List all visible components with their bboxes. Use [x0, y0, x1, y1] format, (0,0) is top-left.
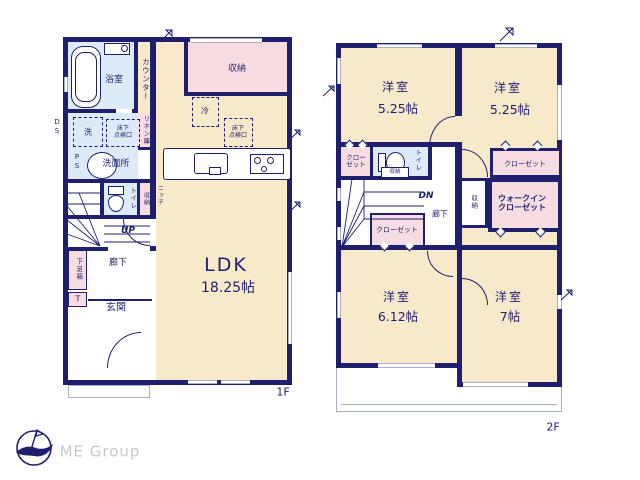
dn-label: DN	[418, 191, 433, 201]
closet-top-label: クローゼット	[504, 160, 546, 168]
counter-label: カウンター	[141, 58, 150, 101]
balcony-rail	[341, 404, 557, 405]
hatch-line2: 点検口	[114, 132, 132, 139]
burner	[261, 166, 267, 172]
wall	[455, 43, 462, 116]
vent-mark	[560, 288, 574, 302]
window	[337, 292, 342, 318]
shoebox-label: 下足箱	[74, 258, 81, 281]
bath-vanity-bowl	[121, 45, 128, 52]
floor1-label: 1F	[276, 387, 289, 400]
wall	[63, 247, 108, 251]
ldk-label: LDK	[204, 255, 248, 277]
toilet-tank	[108, 186, 124, 195]
ps-label: PS	[73, 153, 81, 171]
window	[288, 272, 293, 344]
ds-label: DS	[53, 118, 61, 136]
vent-mark	[497, 24, 515, 42]
wic-line2: クローゼット	[498, 203, 546, 212]
room-tl-size: 5.25帖	[378, 102, 418, 116]
wall	[100, 183, 104, 215]
wall	[134, 37, 138, 113]
floor2-label: 2F	[546, 422, 559, 435]
room-tr-size: 5.25帖	[490, 103, 530, 117]
porch	[68, 385, 150, 398]
kitchen-faucet	[209, 167, 221, 175]
bird-logo-icon	[12, 426, 56, 470]
bath-door-gap	[116, 109, 132, 113]
vent-mark	[158, 27, 174, 43]
burner	[254, 157, 261, 164]
door-gap	[150, 219, 156, 246]
wic-label: ウォークイン クローゼット	[498, 194, 546, 212]
stairs-1f-winder	[67, 183, 100, 246]
niche-label: ニッチ	[156, 185, 163, 206]
ldk-storage-label: 収納	[228, 64, 246, 74]
linen-label: リネン庫	[141, 115, 148, 145]
bathtub-inner	[75, 52, 97, 102]
vent-mark	[288, 128, 302, 142]
wall	[184, 92, 287, 96]
window	[190, 38, 262, 43]
window	[557, 85, 562, 140]
vent-mark	[288, 200, 302, 214]
storage-mid-label: 収納	[469, 195, 476, 210]
floorplan-canvas: 浴室 カウンター 洗 床下 点検口 リネン庫 洗面所 PS DS トイレ 収納 …	[0, 0, 640, 480]
room-br-label: 洋室	[495, 291, 523, 305]
closet-mid-label: クローゼット	[376, 226, 418, 234]
up-label: UP	[121, 226, 135, 236]
wall	[428, 147, 432, 180]
fridge-label: 冷	[201, 106, 209, 115]
hallway1-label: 廊下	[109, 258, 127, 268]
hallway2-label: 廊下	[432, 209, 448, 218]
wic-line1: ウォークイン	[498, 194, 546, 203]
wall	[184, 37, 188, 92]
window	[378, 363, 435, 368]
closet-tl-label: クロー ゼット	[346, 155, 366, 170]
window	[337, 188, 342, 201]
vent-mark	[322, 84, 336, 98]
wall	[137, 183, 140, 215]
hatch-line2: 点検口	[229, 132, 247, 139]
wall	[455, 147, 462, 250]
logo-text: ME Group	[60, 443, 141, 460]
closet-line2: ゼット	[346, 161, 366, 169]
window	[463, 382, 528, 387]
room-bl-label: 洋室	[383, 291, 411, 305]
room-tl-label: 洋室	[382, 81, 410, 95]
washroom-label: 洗面所	[102, 159, 129, 169]
window	[188, 380, 217, 385]
entrance-label: 玄関	[106, 302, 126, 314]
room-tr-label: 洋室	[494, 82, 522, 96]
window	[377, 44, 422, 49]
bathroom-label: 浴室	[105, 75, 123, 85]
toilet1-label: トイレ	[128, 187, 135, 210]
ldk-size-label: 18.25帖	[201, 280, 255, 296]
floor-hatch2-label: 床下 点検口	[229, 126, 247, 140]
t-label: T	[76, 294, 81, 303]
window	[337, 227, 342, 240]
entrance-step-line	[88, 299, 152, 301]
room-bl-size: 6.12帖	[378, 310, 418, 324]
floor-hatch-label: 床下 点検口	[114, 126, 132, 140]
window	[64, 77, 69, 92]
window	[495, 44, 537, 49]
toilet2-label: トイレ	[413, 149, 420, 172]
toilet2-storage-label: 収納	[389, 169, 400, 175]
storage-strip-label: 収納	[142, 192, 149, 206]
window	[221, 380, 250, 385]
room-br-size: 7帖	[500, 310, 520, 324]
window	[337, 58, 342, 84]
burner	[267, 157, 274, 164]
washer-label: 洗	[84, 127, 92, 136]
stairs-2f	[342, 179, 424, 247]
wall	[138, 147, 154, 150]
